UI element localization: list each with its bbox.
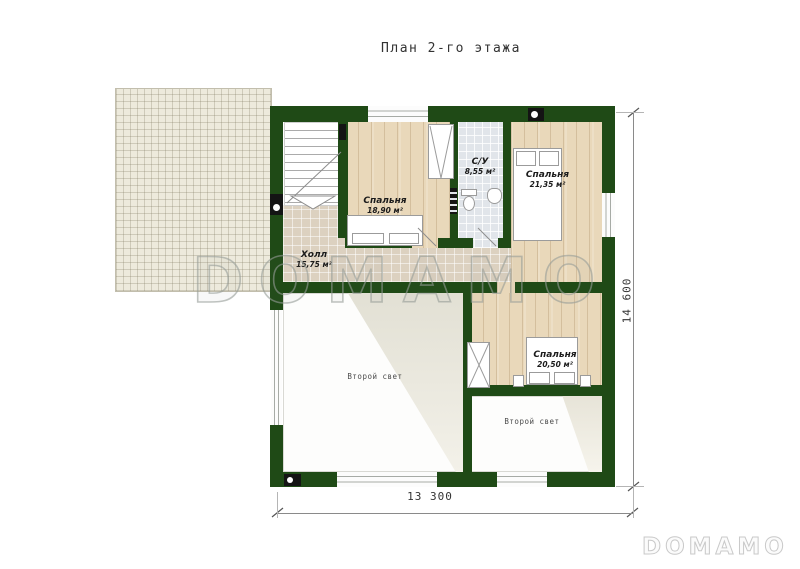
room-name: Спальня — [345, 196, 425, 206]
room-label-bedroom-top-left: Спальня 18,90 м² — [345, 196, 425, 216]
extension-line — [277, 492, 278, 518]
room-label-bedroom-top-right: Спальня 21,35 м² — [510, 170, 585, 190]
stairs-direction-arrow — [291, 196, 335, 209]
dimension-line-horizontal — [277, 513, 633, 514]
room-name: Спальня — [510, 170, 585, 180]
void-right-label: Второй свет — [482, 417, 582, 426]
room-area: 8,55 м² — [456, 167, 504, 177]
extension-line — [616, 112, 644, 113]
room-name: Спальня — [520, 350, 590, 360]
room-area: 18,90 м² — [345, 206, 425, 216]
watermark-text: DOMAMO — [192, 244, 610, 317]
extension-line — [633, 487, 634, 518]
stairs-break-line — [287, 152, 341, 203]
closet-door-line — [441, 126, 452, 178]
dimension-horizontal-value: 13 300 — [385, 490, 475, 503]
room-name: С/У — [456, 157, 504, 167]
extension-line — [616, 486, 644, 487]
room-area: 20,50 м² — [520, 360, 590, 370]
room-area: 21,35 м² — [510, 180, 585, 190]
floor-plan-page: План 2-го этажа — [0, 0, 800, 569]
void-left-label: Второй свет — [325, 372, 425, 381]
room-label-bathroom: С/У 8,55 м² — [456, 157, 504, 177]
dimension-vertical-value: 14 600 — [621, 261, 634, 341]
closet-door-line — [430, 126, 441, 178]
room-label-bedroom-right: Спальня 20,50 м² — [520, 350, 590, 370]
brand-logo: DOMAMO — [642, 534, 788, 560]
